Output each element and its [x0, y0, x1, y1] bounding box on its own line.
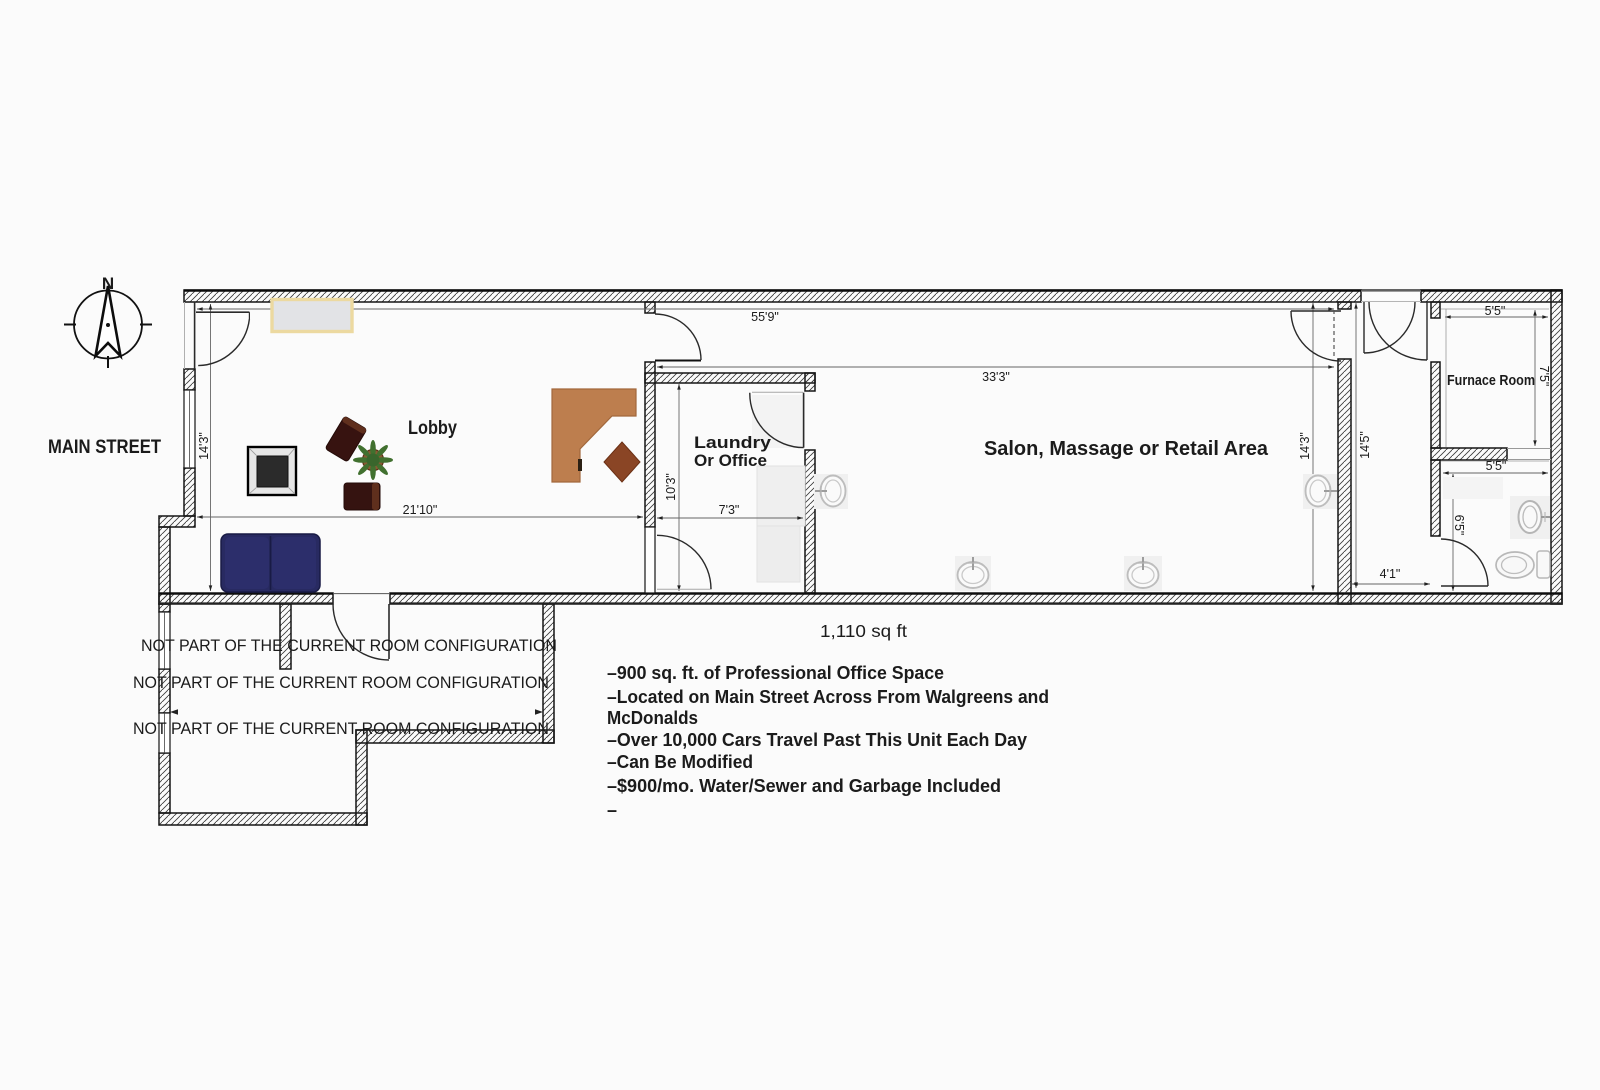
svg-text:McDonalds: McDonalds — [607, 708, 698, 728]
svg-text:33'3": 33'3" — [982, 370, 1010, 384]
svg-text:6'5": 6'5" — [1452, 515, 1466, 536]
svg-text:NOT PART OF THE CURRENT ROOM C: NOT PART OF THE CURRENT ROOM CONFIGURATI… — [141, 636, 557, 655]
svg-text:4'1": 4'1" — [1380, 567, 1401, 581]
svg-text:1,110 sq ft: 1,110 sq ft — [820, 621, 907, 641]
svg-text:7'3": 7'3" — [719, 503, 740, 517]
svg-text:–900 sq. ft. of Professional O: –900 sq. ft. of Professional Office Spac… — [607, 663, 944, 683]
svg-text:MAIN STREET: MAIN STREET — [48, 437, 161, 458]
svg-text:14'5": 14'5" — [1358, 431, 1372, 459]
svg-text:5'5": 5'5" — [1485, 304, 1506, 318]
svg-text:–Located on Main Street Across: –Located on Main Street Across From Walg… — [607, 687, 1049, 707]
svg-text:NOT PART OF THE CURRENT ROOM C: NOT PART OF THE CURRENT ROOM CONFIGURATI… — [133, 719, 549, 738]
svg-text:Laundry: Laundry — [694, 433, 772, 452]
svg-text:Furnace Room: Furnace Room — [1447, 373, 1535, 389]
svg-text:21'10": 21'10" — [403, 503, 438, 517]
svg-text:–Over 10,000 Cars Travel Past: –Over 10,000 Cars Travel Past This Unit … — [607, 730, 1027, 750]
svg-text:55'9": 55'9" — [751, 310, 779, 324]
svg-text:N: N — [102, 274, 114, 293]
svg-text:–: – — [607, 800, 617, 820]
svg-text:14'3": 14'3" — [197, 432, 211, 460]
svg-text:Or Office: Or Office — [694, 451, 767, 470]
svg-text:14'3": 14'3" — [1298, 432, 1312, 460]
svg-text:Lobby: Lobby — [408, 418, 457, 439]
svg-text:5'5": 5'5" — [1486, 459, 1507, 473]
svg-text:10'3": 10'3" — [664, 473, 678, 501]
svg-text:–$900/mo. Water/Sewer and Garb: –$900/mo. Water/Sewer and Garbage Includ… — [607, 776, 1001, 796]
svg-text:–Can Be Modified: –Can Be Modified — [607, 752, 753, 772]
svg-text:Salon, Massage or Retail Area: Salon, Massage or Retail Area — [984, 438, 1269, 460]
svg-text:7'5": 7'5" — [1537, 366, 1551, 387]
svg-text:NOT PART OF THE CURRENT ROOM C: NOT PART OF THE CURRENT ROOM CONFIGURATI… — [133, 673, 549, 692]
